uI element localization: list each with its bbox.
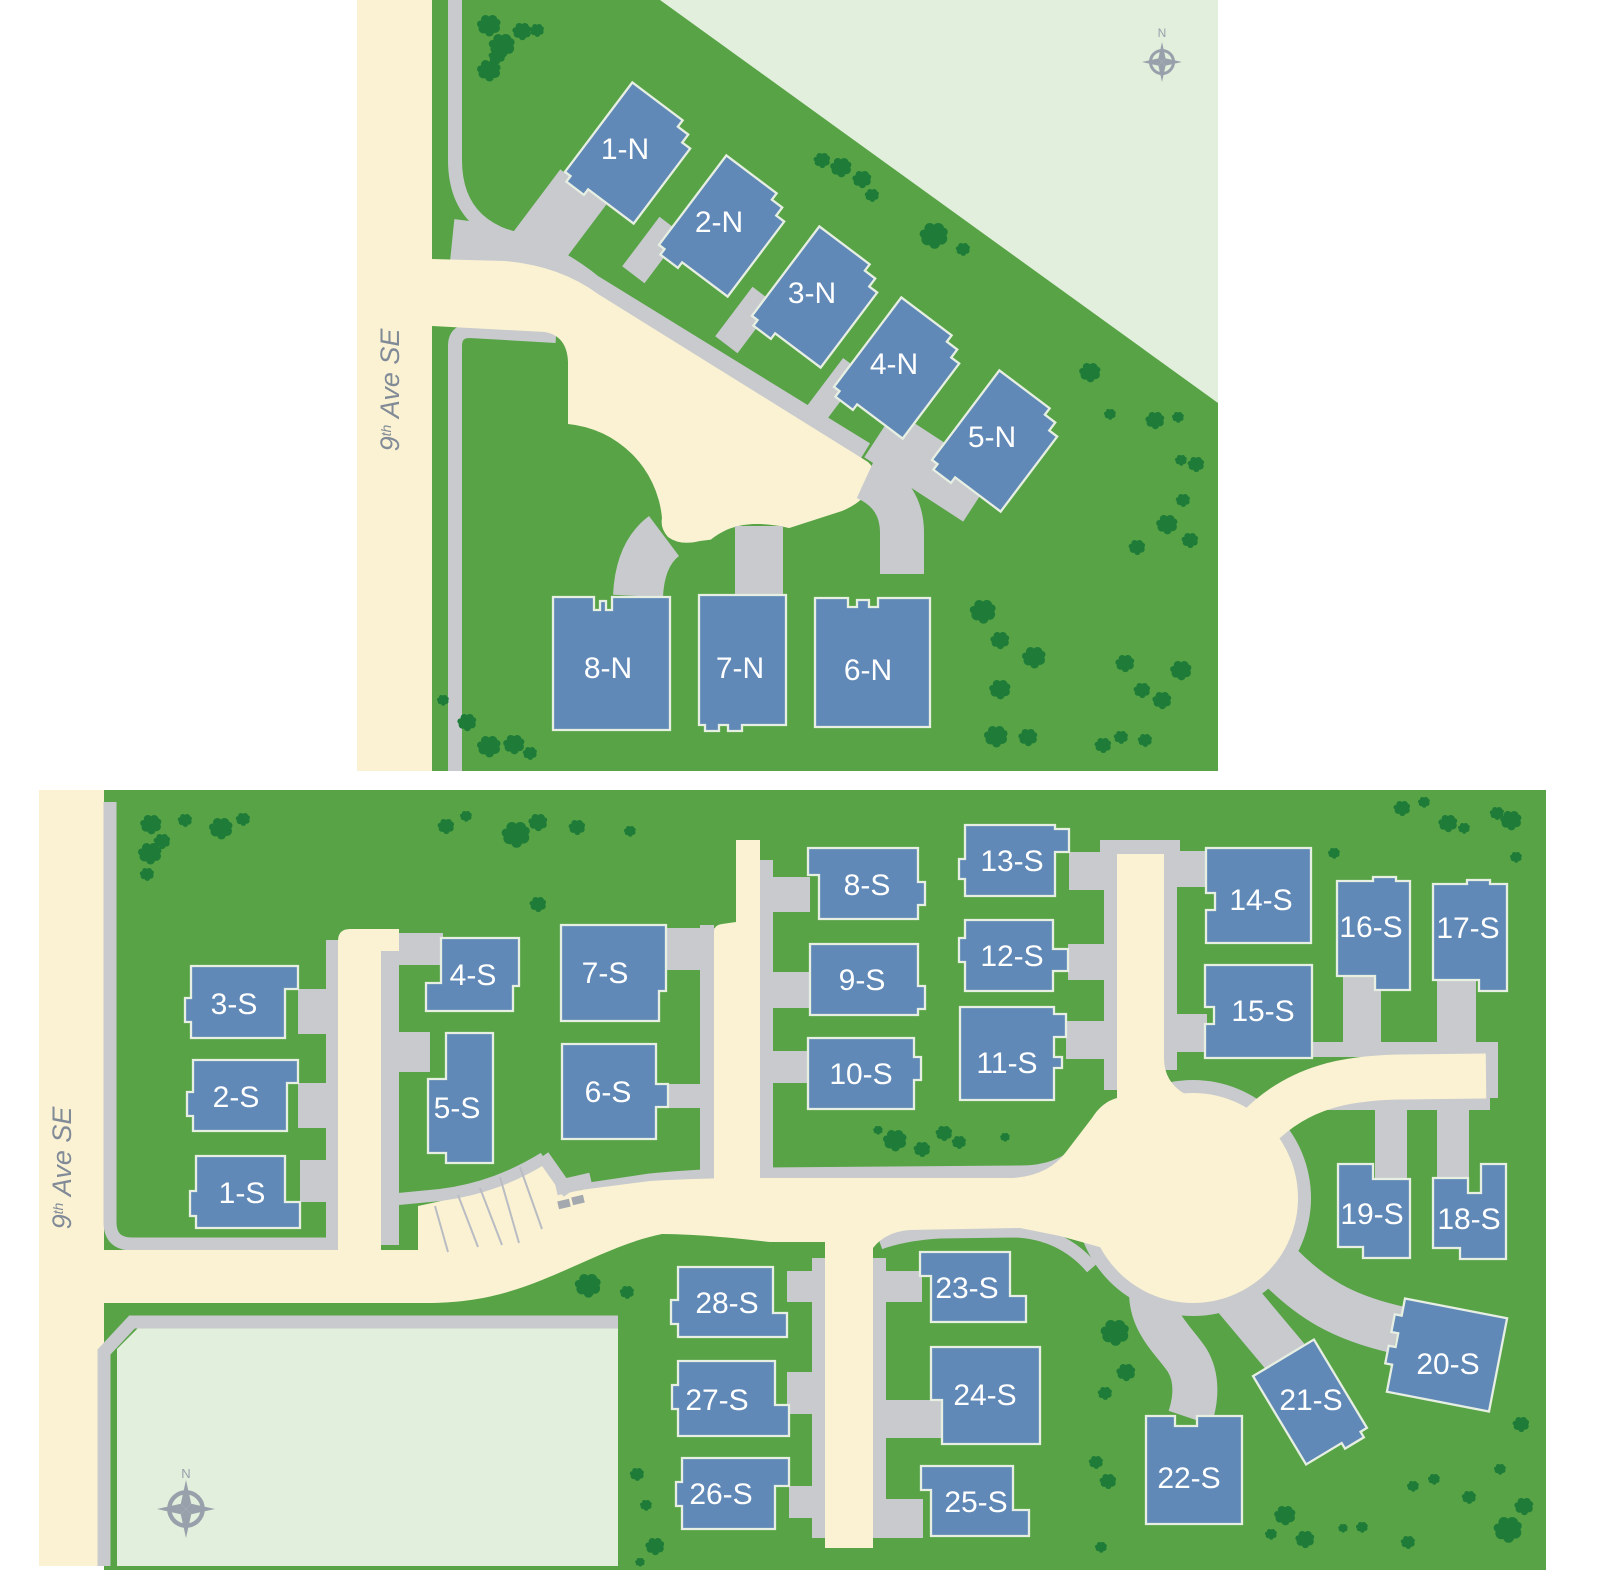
svg-text:22-S: 22-S bbox=[1157, 1462, 1220, 1495]
svg-text:3-N: 3-N bbox=[788, 277, 836, 310]
svg-text:7-N: 7-N bbox=[716, 652, 764, 685]
svg-text:7-S: 7-S bbox=[582, 957, 629, 990]
svg-text:17-S: 17-S bbox=[1436, 912, 1499, 945]
svg-text:21-S: 21-S bbox=[1279, 1384, 1342, 1417]
svg-text:2-S: 2-S bbox=[213, 1081, 260, 1114]
svg-text:23-S: 23-S bbox=[935, 1272, 998, 1305]
svg-text:16-S: 16-S bbox=[1339, 911, 1402, 944]
svg-text:3-S: 3-S bbox=[211, 988, 258, 1021]
svg-text:11-S: 11-S bbox=[976, 1047, 1037, 1080]
svg-text:12-S: 12-S bbox=[980, 940, 1043, 973]
svg-text:9-S: 9-S bbox=[839, 964, 886, 997]
svg-text:15-S: 15-S bbox=[1231, 995, 1294, 1028]
svg-text:N: N bbox=[1158, 26, 1167, 40]
svg-text:1-S: 1-S bbox=[219, 1177, 266, 1210]
svg-text:8-N: 8-N bbox=[584, 652, 632, 685]
svg-text:6-S: 6-S bbox=[585, 1076, 632, 1109]
svg-text:6-N: 6-N bbox=[844, 654, 892, 687]
svg-text:N: N bbox=[181, 1466, 190, 1481]
svg-text:10-S: 10-S bbox=[829, 1058, 892, 1091]
svg-text:24-S: 24-S bbox=[953, 1379, 1016, 1412]
svg-text:18-S: 18-S bbox=[1437, 1203, 1500, 1236]
svg-text:28-S: 28-S bbox=[695, 1287, 758, 1320]
svg-text:4-S: 4-S bbox=[450, 959, 497, 992]
svg-text:20-S: 20-S bbox=[1416, 1348, 1479, 1381]
svg-text:26-S: 26-S bbox=[689, 1478, 752, 1511]
svg-text:19-S: 19-S bbox=[1340, 1198, 1403, 1231]
svg-text:1-N: 1-N bbox=[601, 133, 649, 166]
svg-text:27-S: 27-S bbox=[685, 1384, 748, 1417]
svg-text:5-N: 5-N bbox=[968, 421, 1016, 454]
svg-text:25-S: 25-S bbox=[944, 1486, 1007, 1519]
svg-text:5-S: 5-S bbox=[434, 1092, 481, 1125]
svg-text:13-S: 13-S bbox=[980, 845, 1043, 878]
svg-text:14-S: 14-S bbox=[1229, 884, 1292, 917]
svg-text:4-N: 4-N bbox=[870, 348, 918, 381]
svg-text:2-N: 2-N bbox=[695, 206, 743, 239]
svg-text:8-S: 8-S bbox=[844, 869, 891, 902]
